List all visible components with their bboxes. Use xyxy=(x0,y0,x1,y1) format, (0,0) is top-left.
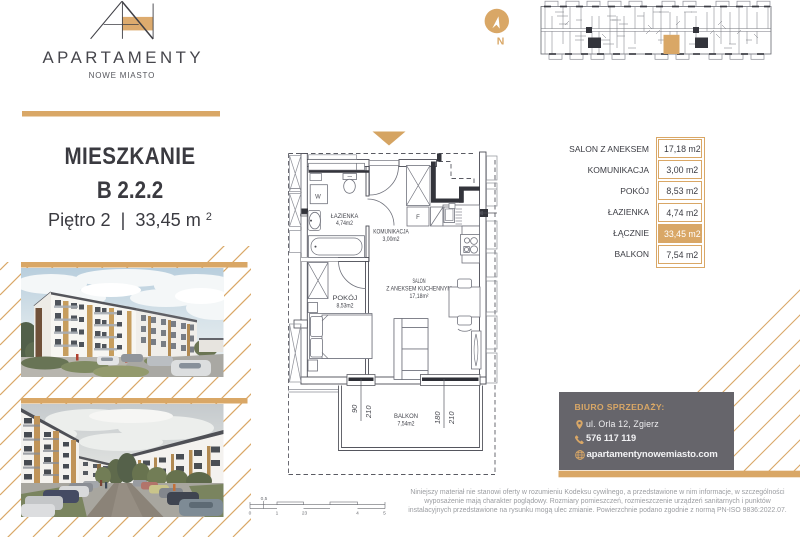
svg-text:8,53m2: 8,53m2 xyxy=(337,303,354,310)
svg-text:SALON: SALON xyxy=(413,278,426,285)
svg-text:4: 4 xyxy=(356,511,359,517)
svg-text:17,18m²: 17,18m² xyxy=(410,293,429,300)
svg-text:1: 1 xyxy=(276,511,279,517)
svg-text:23: 23 xyxy=(302,511,308,517)
svg-text:5: 5 xyxy=(383,511,386,517)
svg-text:KOMUNIKACJA: KOMUNIKACJA xyxy=(373,229,409,236)
svg-text:BALKON: BALKON xyxy=(394,413,418,420)
svg-text:180: 180 xyxy=(433,411,442,424)
svg-text:4,74m2: 4,74m2 xyxy=(336,220,353,227)
svg-text:90: 90 xyxy=(350,404,359,413)
svg-text:N: N xyxy=(497,36,505,48)
svg-text:210: 210 xyxy=(447,411,456,425)
svg-text:7,54m2: 7,54m2 xyxy=(398,421,415,428)
svg-text:POKÓJ: POKÓJ xyxy=(333,293,358,302)
svg-text:Z ANEKSEM KUCHENNYM: Z ANEKSEM KUCHENNYM xyxy=(386,286,452,293)
svg-text:210: 210 xyxy=(364,405,373,419)
svg-text:W: W xyxy=(315,194,321,200)
svg-text:0,5: 0,5 xyxy=(261,496,268,502)
svg-text:0: 0 xyxy=(249,511,252,517)
svg-text:3,00m2: 3,00m2 xyxy=(383,236,400,243)
svg-text:F: F xyxy=(416,215,420,221)
